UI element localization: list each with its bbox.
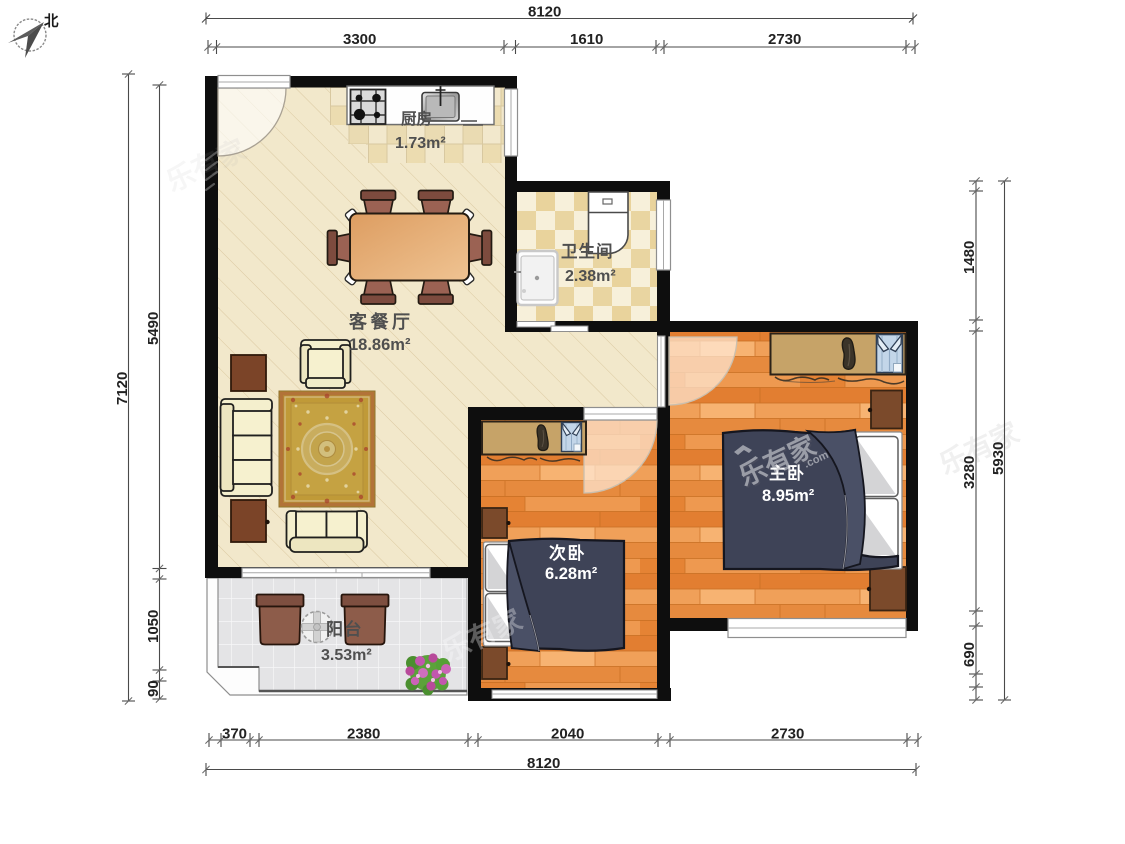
svg-text:90: 90	[145, 680, 162, 697]
svg-text:2730: 2730	[768, 31, 801, 48]
svg-text:2380: 2380	[347, 726, 380, 743]
svg-text:370: 370	[222, 726, 247, 743]
svg-text:690: 690	[961, 642, 978, 667]
svg-text:1480: 1480	[961, 241, 978, 274]
svg-text:8120: 8120	[528, 4, 561, 21]
svg-text:5490: 5490	[145, 312, 162, 345]
svg-text:1.73m²: 1.73m²	[395, 135, 446, 152]
svg-text:客餐厅: 客餐厅	[349, 311, 414, 332]
svg-text:8120: 8120	[527, 755, 560, 772]
svg-text:北: 北	[44, 13, 59, 30]
svg-text:2730: 2730	[771, 726, 804, 743]
svg-text:5930: 5930	[990, 442, 1007, 475]
svg-text:6.28m²: 6.28m²	[545, 565, 598, 583]
svg-text:1610: 1610	[570, 31, 603, 48]
svg-text:7120: 7120	[114, 372, 131, 405]
svg-text:3280: 3280	[961, 456, 978, 489]
svg-text:2040: 2040	[551, 726, 584, 743]
svg-text:次卧: 次卧	[549, 543, 586, 563]
svg-text:阳台: 阳台	[326, 619, 363, 639]
svg-text:3.53m²: 3.53m²	[321, 647, 372, 664]
svg-text:18.86m²: 18.86m²	[349, 336, 411, 354]
svg-text:3300: 3300	[343, 31, 376, 48]
svg-text:卫生间: 卫生间	[561, 241, 614, 261]
svg-text:2.38m²: 2.38m²	[565, 268, 616, 285]
svg-text:8.95m²: 8.95m²	[762, 487, 815, 505]
svg-text:1050: 1050	[145, 610, 162, 643]
svg-text:厨房: 厨房	[401, 109, 432, 128]
